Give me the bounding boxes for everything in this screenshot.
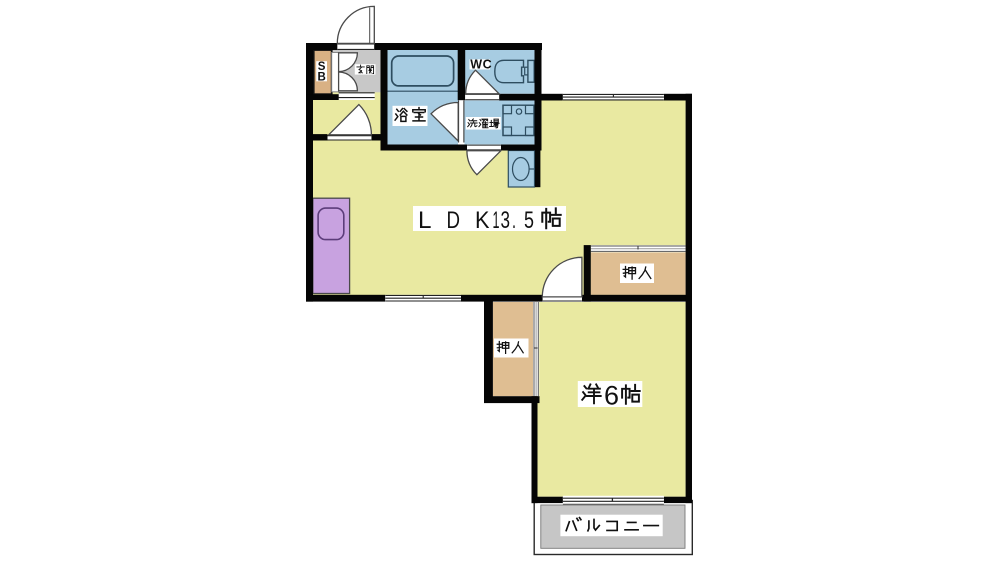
svg-text:B: B [317, 72, 325, 84]
svg-text:.: . [512, 207, 516, 234]
svg-text:WC: WC [470, 58, 492, 72]
svg-text:1: 1 [493, 207, 500, 234]
svg-text:K: K [475, 207, 490, 234]
svg-text:L: L [418, 207, 432, 234]
svg-text:6: 6 [604, 381, 619, 411]
svg-text:3: 3 [501, 207, 511, 234]
svg-text:5: 5 [524, 207, 534, 234]
svg-text:D: D [447, 207, 461, 234]
